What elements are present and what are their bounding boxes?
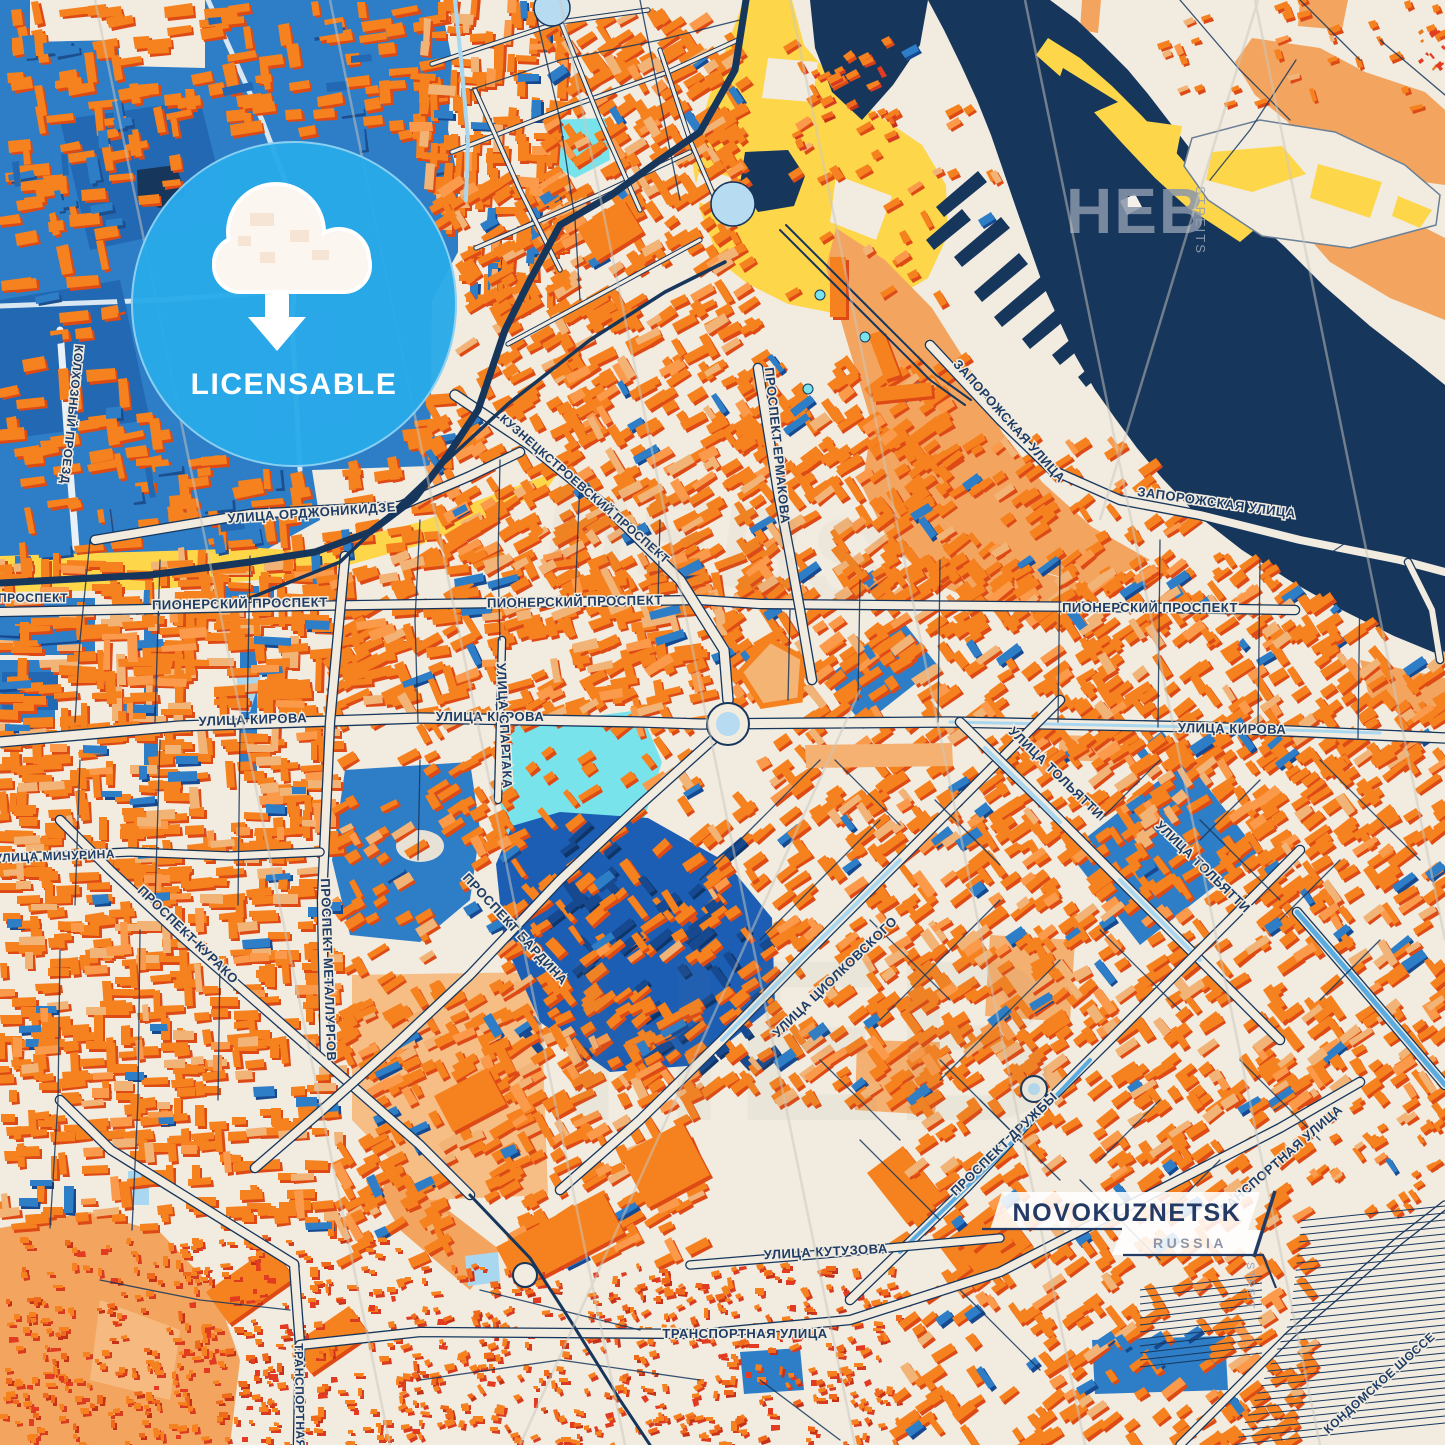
svg-text:STREITS: STREITS xyxy=(1193,186,1208,255)
svg-text:NOVOKUZNETSK: NOVOKUZNETSK xyxy=(1013,1199,1242,1227)
svg-text:УЛИЦА КИРОВА: УЛИЦА КИРОВА xyxy=(1178,720,1287,737)
svg-text:STREIT: STREIT xyxy=(1244,1262,1256,1310)
svg-text:HEB: HEB xyxy=(560,912,1064,1169)
svg-text:ТРАНСПОРТНАЯ УЛИЦА: ТРАНСПОРТНАЯ УЛИЦА xyxy=(292,1343,309,1445)
svg-text:ПИОНЕРСКИЙ ПРОСПЕКТ: ПИОНЕРСКИЙ ПРОСПЕКТ xyxy=(152,594,328,612)
svg-text:ПРОСПЕКТ: ПРОСПЕКТ xyxy=(0,591,68,605)
svg-text:ТРАНСПОРТНАЯ УЛИЦА: ТРАНСПОРТНАЯ УЛИЦА xyxy=(662,1326,827,1341)
svg-text:УЛИЦА КИРОВА: УЛИЦА КИРОВА xyxy=(436,709,545,724)
svg-text:LICENSABLE: LICENSABLE xyxy=(191,368,398,401)
svg-text:RUSSIA: RUSSIA xyxy=(1153,1235,1227,1251)
